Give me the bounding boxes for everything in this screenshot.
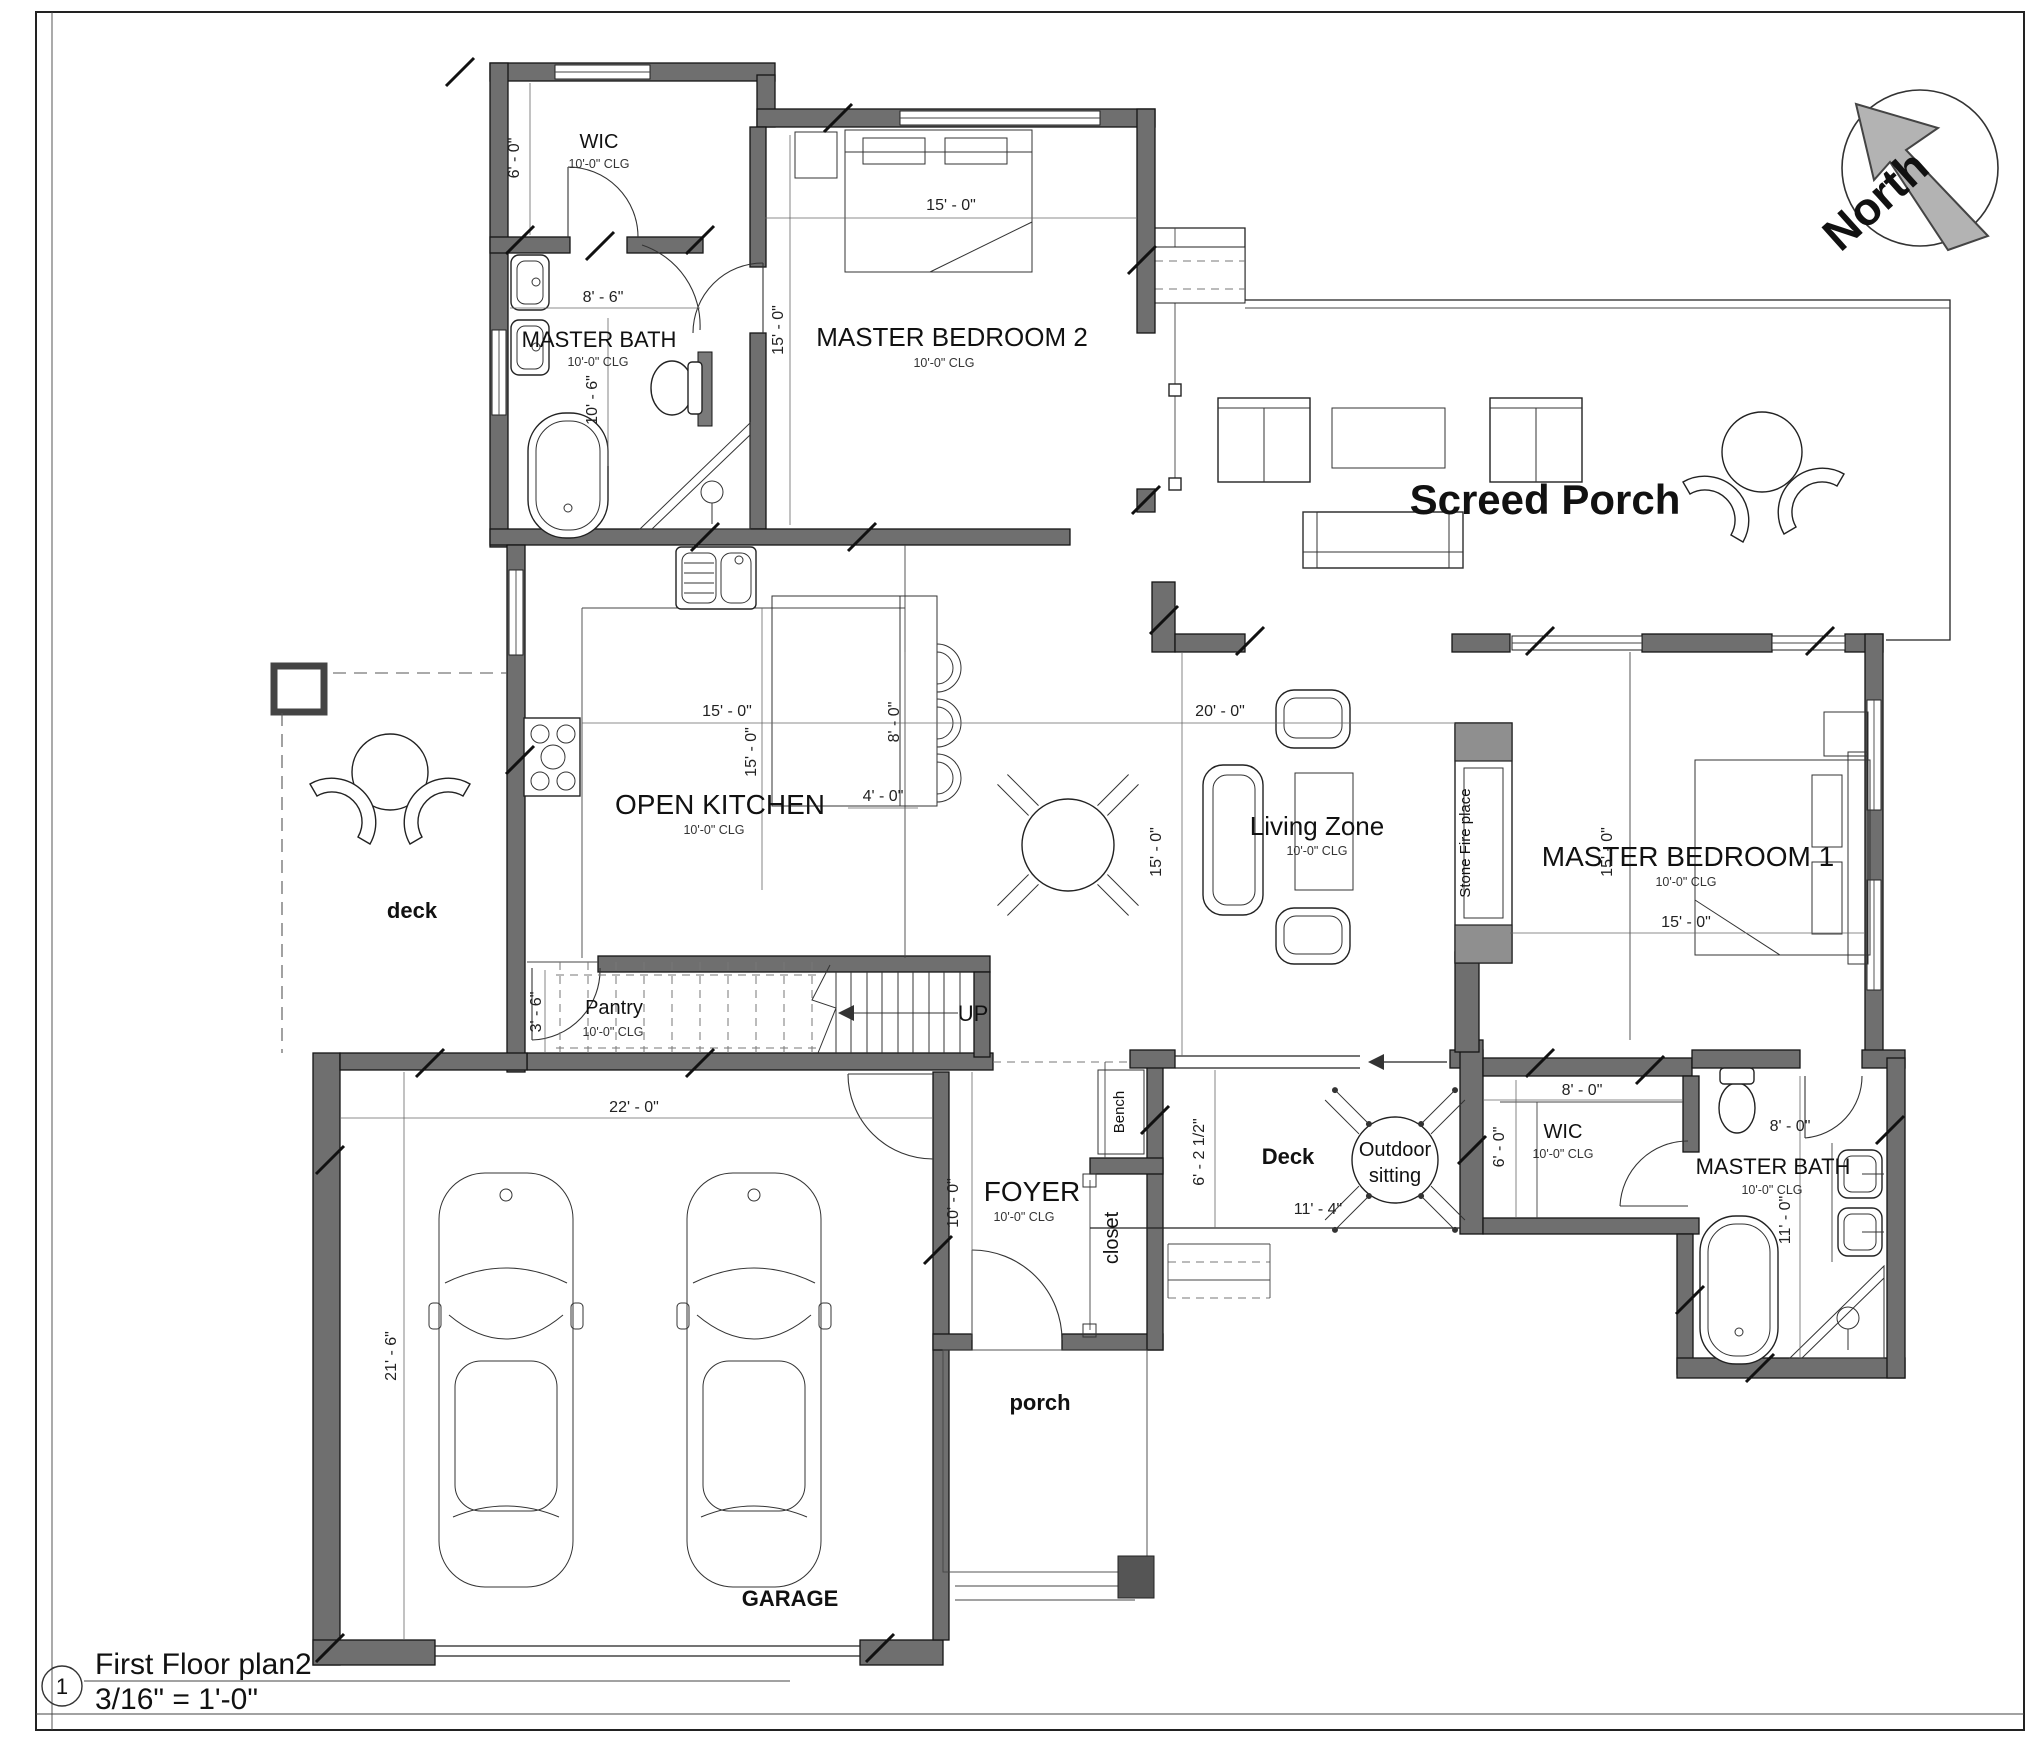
clg-master-bedroom-2: 10'-0" CLG: [913, 356, 974, 370]
deck-left-area: [274, 666, 507, 1053]
stairs-up-label: UP: [958, 1001, 989, 1026]
kitchen-island: [772, 596, 937, 806]
outdoor-sitting-line2: sitting: [1369, 1165, 1421, 1187]
dim-wic-lower-width: 8' - 0": [1562, 1082, 1603, 1099]
dining-furniture: [997, 774, 1138, 915]
dim-living-width: 20' - 0": [1195, 703, 1245, 720]
porch-round-table: [1722, 412, 1802, 492]
room-label-master-bedroom-1: MASTER BEDROOM 1: [1542, 841, 1834, 872]
clg-open-kitchen: 10'-0" CLG: [683, 823, 744, 837]
porch-coffee-table: [1332, 408, 1445, 468]
dim-bath-upper-depth: 10' - 6": [584, 375, 601, 425]
garage-area: [429, 1173, 831, 1587]
bar-stool: [937, 754, 961, 802]
dim-bath-upper-width: 8' - 6": [583, 289, 624, 306]
dim-wic-lower-depth: 6' - 0": [1491, 1127, 1508, 1168]
bar-stool: [937, 644, 961, 692]
dim-bath-lower-depth: 11' - 0": [1777, 1196, 1794, 1244]
dim-kitchen-depth: 15' - 0": [743, 727, 760, 777]
sheet-scale: 3/16" = 1'-0": [95, 1683, 258, 1716]
north-arrow-icon: North: [1812, 90, 1998, 260]
dim-mb1-width: 15' - 0": [1661, 914, 1711, 931]
clg-master-bedroom-1: 10'-0" CLG: [1655, 875, 1716, 889]
porch-curved-chair: [1683, 476, 1749, 542]
bathtub: [528, 413, 608, 538]
shower: [640, 423, 750, 529]
room-label-open-kitchen: OPEN KITCHEN: [615, 789, 825, 820]
dim-bath-lower-width: 8' - 0": [1770, 1118, 1811, 1135]
clg-wic-upper: 10'-0" CLG: [568, 157, 629, 171]
fireplace-label: Stone Fire place: [1457, 788, 1474, 897]
car: [677, 1173, 831, 1587]
room-label-wic-lower: WIC: [1544, 1121, 1583, 1143]
dim-island-width: 4' - 0": [863, 788, 904, 805]
clg-living-zone: 10'-0" CLG: [1286, 844, 1347, 858]
toilet: [1719, 1083, 1755, 1133]
dim-wic-upper-depth: 6' - 0": [506, 138, 523, 179]
room-label-master-bedroom-2: MASTER BEDROOM 2: [816, 322, 1088, 352]
dim-garage-width: 22' - 0": [609, 1099, 659, 1116]
porch-column: [1118, 1556, 1154, 1598]
dim-mb1-depth: 15' - 0": [1599, 827, 1616, 877]
room-label-master-bath-lower: MASTER BATH: [1696, 1154, 1851, 1179]
bench-label: Bench: [1111, 1091, 1128, 1134]
dining-table: [1022, 799, 1114, 891]
dimension-texts: 6' - 0" 8' - 6" 10' - 6" 15' - 0" 15' - …: [383, 138, 1810, 1381]
dim-mb2-depth: 15' - 0": [770, 305, 787, 355]
dim-kitchen-width: 15' - 0": [702, 703, 752, 720]
toilet: [651, 361, 693, 415]
nightstand: [1824, 712, 1868, 756]
sheet-title: First Floor plan2: [95, 1648, 312, 1681]
room-label-deck-left: deck: [387, 898, 438, 923]
car: [429, 1173, 583, 1587]
clg-master-bath-upper: 10'-0" CLG: [567, 355, 628, 369]
deck-column: [274, 666, 324, 712]
closet-label: closet: [1101, 1211, 1123, 1264]
room-label-pantry: Pantry: [585, 997, 643, 1019]
room-label-porch: porch: [1009, 1390, 1070, 1415]
dim-deck-rear-width: 11' - 4": [1294, 1201, 1342, 1218]
master-bedroom-2-furniture: [795, 130, 1032, 272]
dim-island-depth: 8' - 0": [886, 702, 903, 743]
armchair: [1276, 690, 1350, 748]
dim-deck-rear-depth: 6' - 2 1/2": [1191, 1118, 1208, 1185]
floor-plan-drawing: 1 First Floor plan2 3/16" = 1'-0" North: [0, 0, 2042, 1755]
dim-pantry-width: 3' - 6": [528, 992, 545, 1033]
master-bath-upper-fixtures: [511, 255, 750, 538]
dim-mb2-width: 15' - 0": [926, 197, 976, 214]
dim-garage-depth: 21' - 6": [383, 1331, 400, 1381]
dim-living-depth: 15' - 0": [1148, 827, 1165, 877]
room-labels: WIC 10'-0" CLG MASTER BATH 10'-0" CLG MA…: [387, 131, 1850, 1611]
nightstand: [795, 132, 837, 178]
room-label-living-zone: Living Zone: [1250, 811, 1384, 841]
room-label-deck-rear: Deck: [1262, 1144, 1315, 1169]
clg-master-bath-lower: 10'-0" CLG: [1741, 1183, 1802, 1197]
room-label-master-bath-upper: MASTER BATH: [522, 327, 677, 352]
room-label-wic-upper: WIC: [580, 131, 619, 153]
floor-plan-sheet: 1 First Floor plan2 3/16" = 1'-0" North: [0, 0, 2042, 1755]
room-label-garage: GARAGE: [742, 1586, 839, 1611]
clg-wic-lower: 10'-0" CLG: [1532, 1147, 1593, 1161]
outdoor-sitting-line1: Outdoor: [1359, 1139, 1432, 1161]
clg-pantry: 10'-0" CLG: [582, 1025, 643, 1039]
clg-foyer: 10'-0" CLG: [993, 1210, 1054, 1224]
room-label-screed-porch: Screed Porch: [1410, 476, 1681, 523]
room-label-foyer: FOYER: [984, 1176, 1080, 1207]
shower: [1790, 1266, 1884, 1358]
detail-number: 1: [56, 1674, 68, 1699]
porch-area: [943, 1350, 1154, 1600]
dim-foyer-depth: 10' - 0": [945, 1178, 962, 1228]
